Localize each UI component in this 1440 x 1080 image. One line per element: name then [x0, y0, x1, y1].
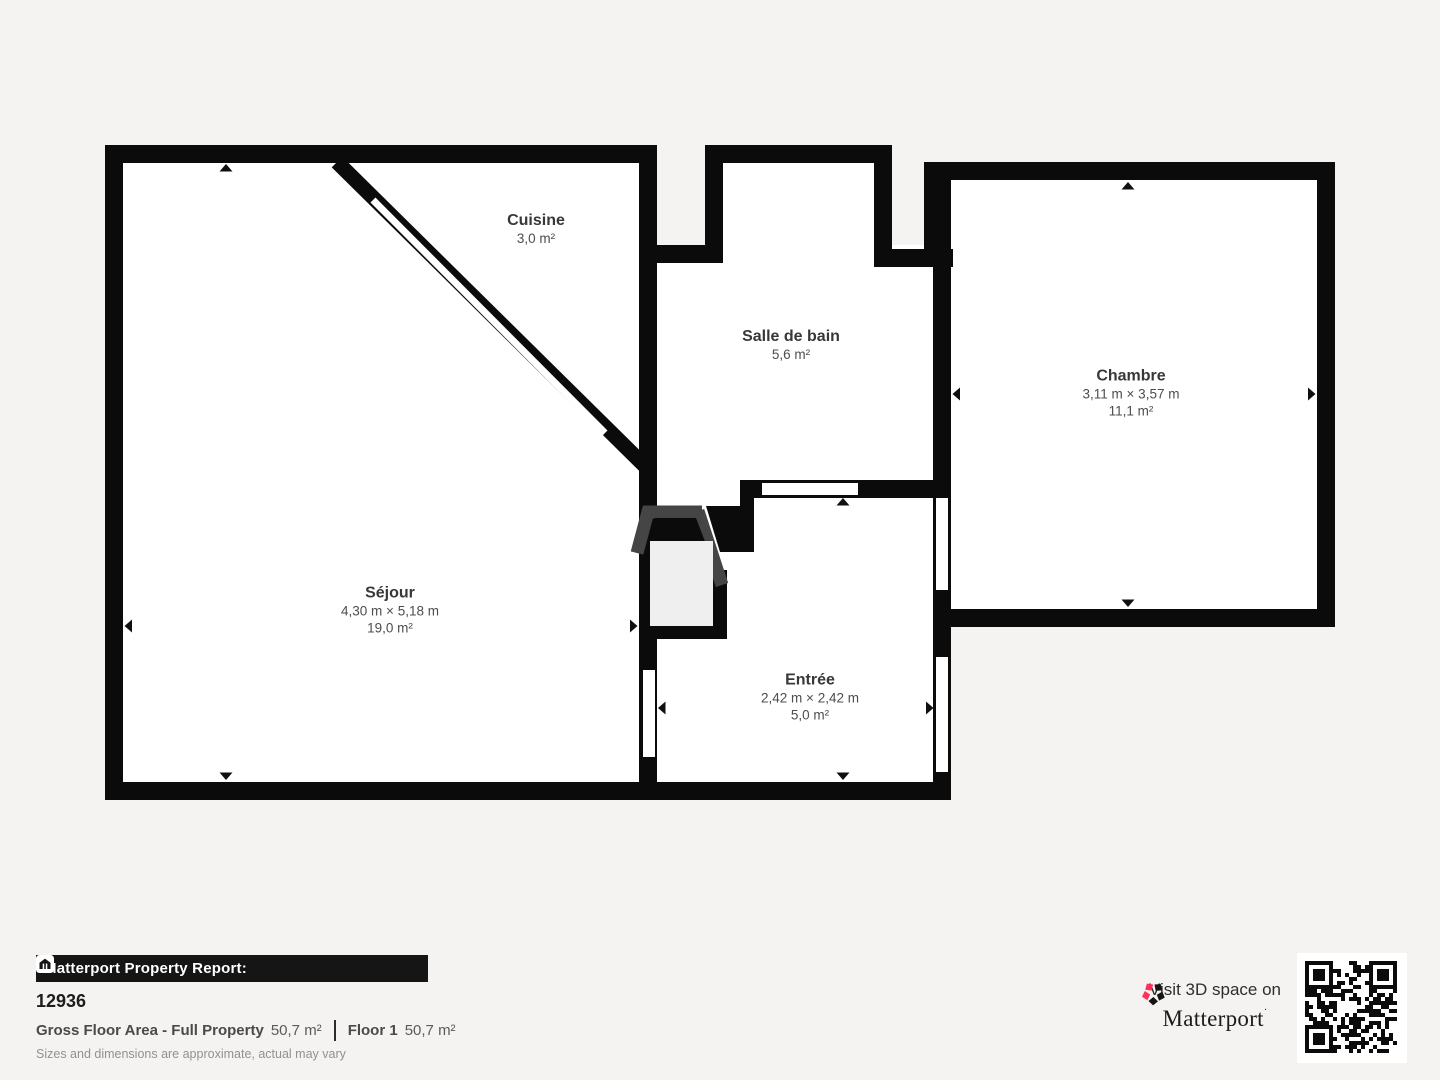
gfa-value: 50,7 m² — [271, 1022, 322, 1039]
report-bar-label: Matterport Property Report: — [44, 960, 247, 977]
visit-3d-text: Visit 3D space on — [1149, 980, 1281, 1000]
gfa-label: Gross Floor Area - Full Property — [36, 1022, 264, 1039]
matterport-wordmark: Matterport· — [1163, 1006, 1268, 1032]
report-bar: Matterport Property Report: — [36, 955, 428, 982]
disclaimer-text: Sizes and dimensions are approximate, ac… — [36, 1047, 346, 1061]
floor-value: 50,7 m² — [405, 1022, 456, 1039]
qr-code — [1297, 953, 1407, 1063]
door-opening-bain-entree — [762, 483, 858, 495]
property-id: 12936 — [36, 991, 86, 1012]
house-icon — [36, 955, 54, 973]
floorplan-page: Cuisine 3,0 m² Salle de bain 5,6 m² Séjo… — [0, 0, 1440, 1080]
floor-area-stats: Gross Floor Area - Full Property 50,7 m²… — [36, 1020, 456, 1041]
window-opening-entree — [936, 657, 948, 772]
door-opening-entree-chambre — [936, 498, 948, 590]
promo-block: Visit 3D space on Matterport· — [1140, 980, 1290, 1032]
door-opening-sejour-entree — [643, 670, 655, 757]
matterport-logo: Matterport· — [1163, 1006, 1268, 1032]
floorplan-canvas — [0, 0, 1440, 1080]
matterport-pinwheel-icon — [1140, 980, 1167, 1007]
stats-divider — [334, 1020, 336, 1041]
floor-label: Floor 1 — [348, 1022, 398, 1039]
